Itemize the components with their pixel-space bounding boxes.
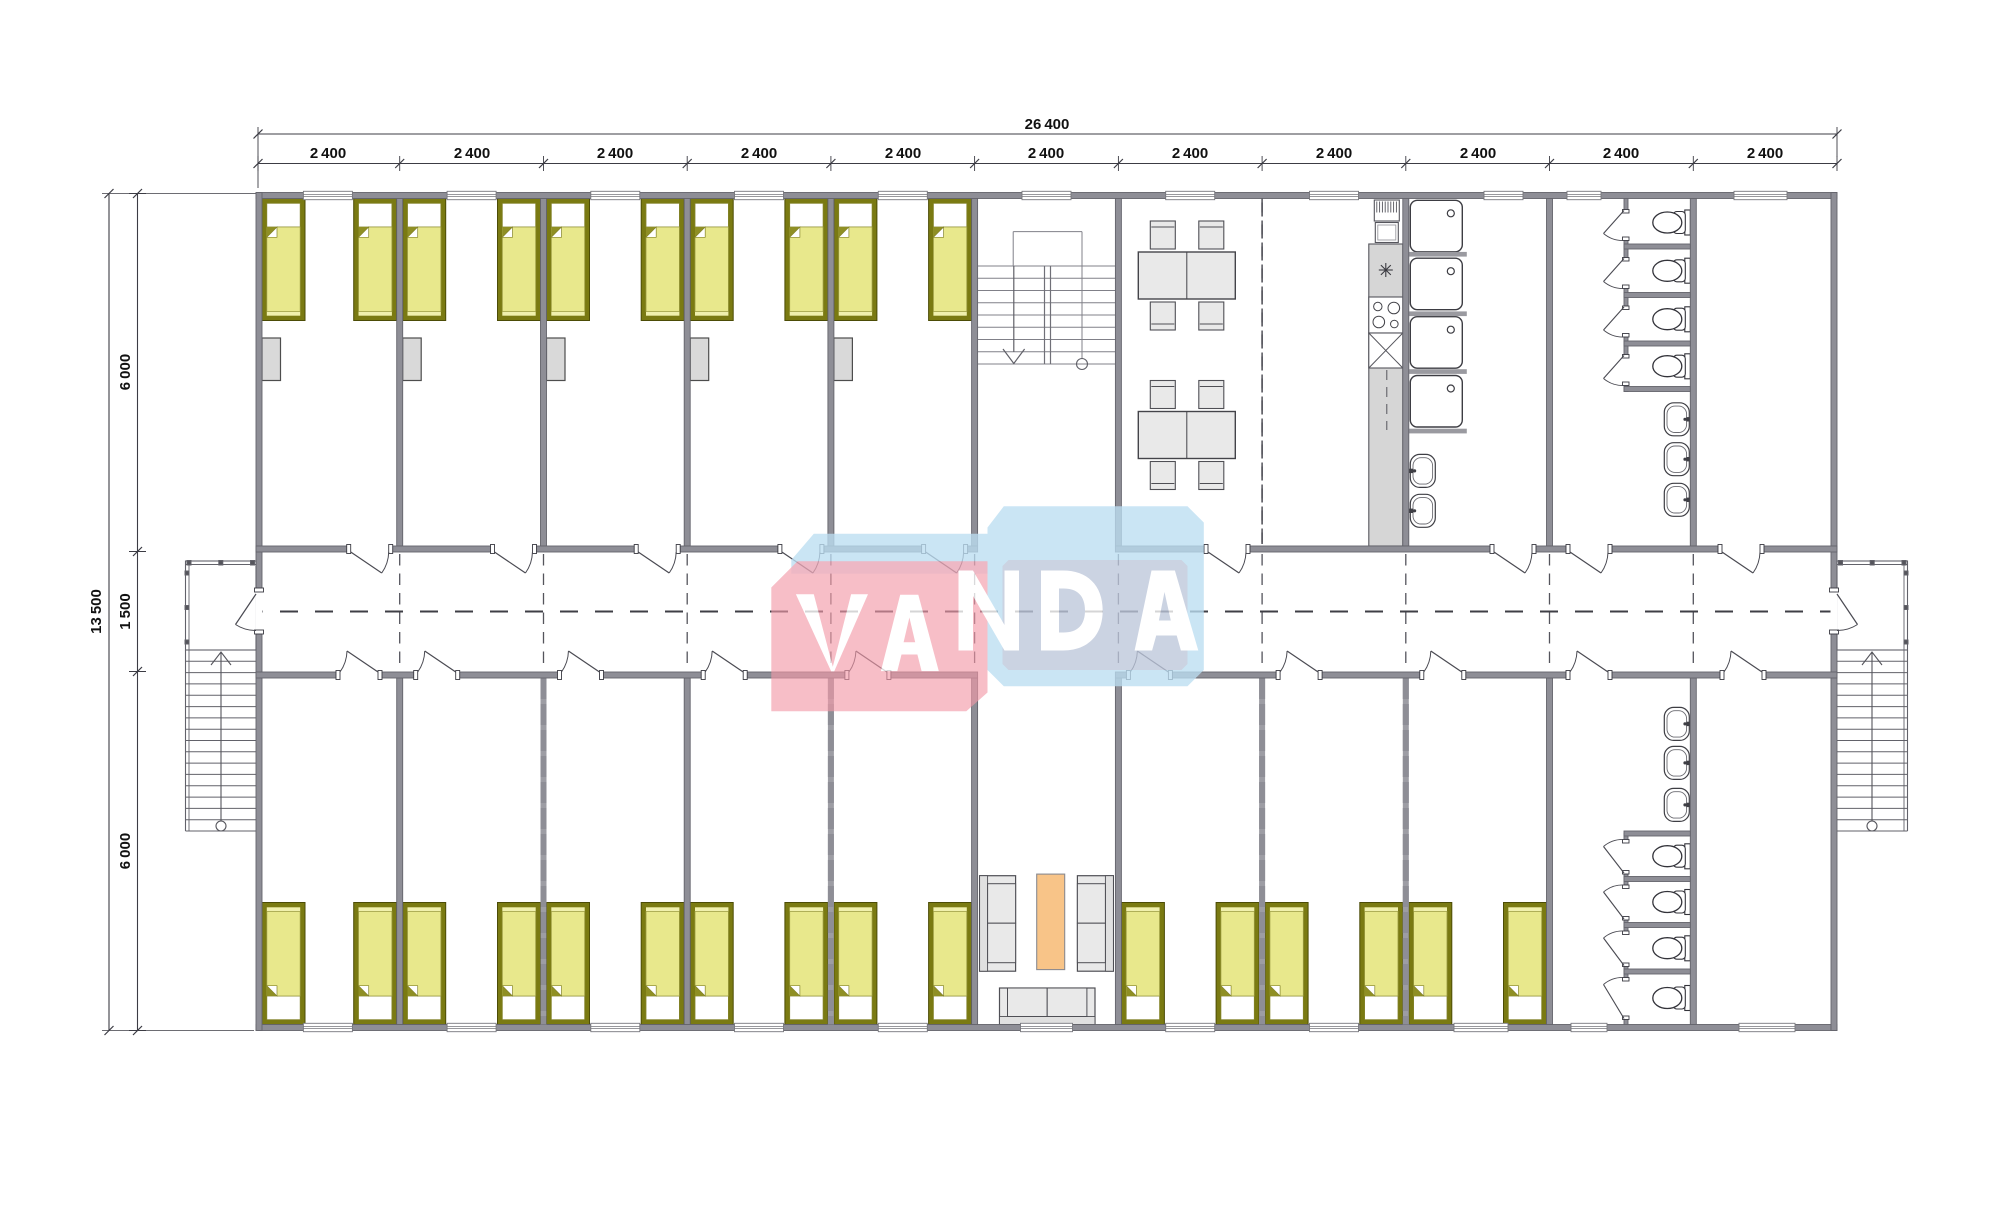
svg-text:2 400: 2 400	[885, 145, 921, 162]
svg-text:2 400: 2 400	[1028, 145, 1064, 162]
svg-text:6 000: 6 000	[117, 354, 134, 390]
svg-text:2 400: 2 400	[1172, 145, 1208, 162]
svg-text:2 400: 2 400	[454, 145, 490, 162]
svg-text:2 400: 2 400	[741, 145, 777, 162]
svg-text:2 400: 2 400	[310, 145, 346, 162]
svg-text:2 400: 2 400	[1316, 145, 1352, 162]
svg-text:1 500: 1 500	[117, 593, 134, 629]
svg-text:13 500: 13 500	[88, 589, 105, 634]
svg-text:2 400: 2 400	[1603, 145, 1639, 162]
svg-text:26 400: 26 400	[1025, 116, 1070, 133]
svg-text:2 400: 2 400	[1747, 145, 1783, 162]
svg-text:2 400: 2 400	[1460, 145, 1496, 162]
svg-text:6 000: 6 000	[117, 833, 134, 869]
svg-text:2 400: 2 400	[597, 145, 633, 162]
